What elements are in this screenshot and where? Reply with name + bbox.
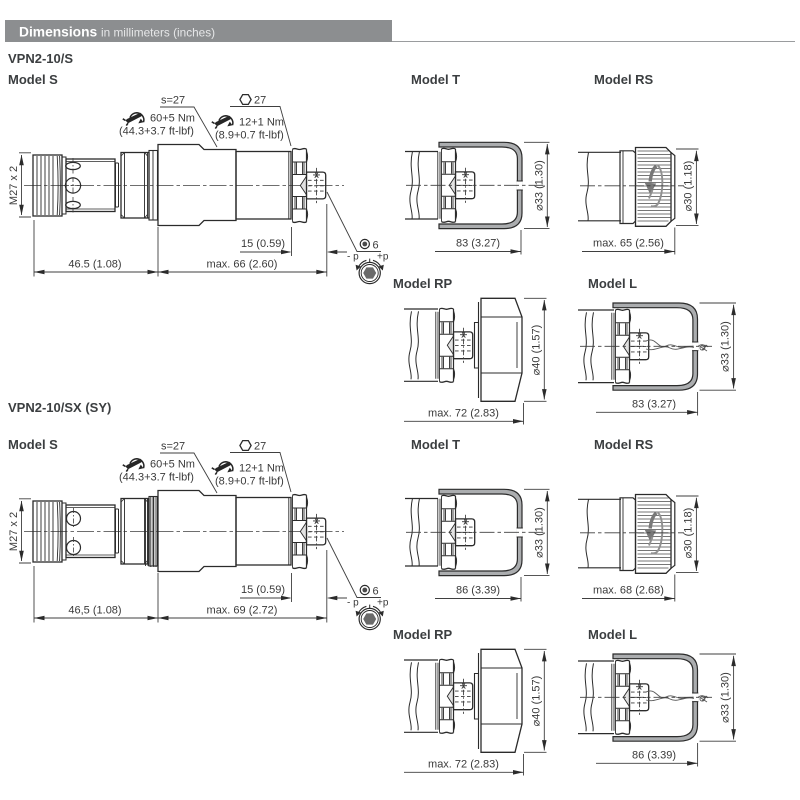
svg-text:86 (3.39): 86 (3.39) [456, 585, 500, 597]
svg-text:86 (3.39): 86 (3.39) [632, 750, 676, 762]
svg-text:15 (0.59): 15 (0.59) [241, 238, 285, 250]
svg-text:83 (3.27): 83 (3.27) [632, 399, 676, 411]
svg-text:max. 65 (2.56): max. 65 (2.56) [593, 238, 664, 250]
svg-text:Model RS: Model RS [594, 72, 654, 87]
svg-text:Model T: Model T [411, 437, 460, 452]
svg-text:46.5 (1.08): 46.5 (1.08) [68, 259, 121, 271]
svg-text:46,5 (1.08): 46,5 (1.08) [68, 605, 121, 617]
svg-text:Model RS: Model RS [594, 437, 654, 452]
svg-text:Model T: Model T [411, 72, 460, 87]
svg-text:VPN2-10/S: VPN2-10/S [8, 51, 73, 66]
svg-text:Model S: Model S [8, 72, 58, 87]
svg-text:VPN2-10/SX (SY): VPN2-10/SX (SY) [8, 400, 111, 415]
svg-text:15 (0.59): 15 (0.59) [241, 584, 285, 596]
svg-text:Dimensions: Dimensions [19, 25, 98, 40]
svg-text:Model L: Model L [588, 276, 637, 291]
svg-text:max. 66 (2.60): max. 66 (2.60) [207, 259, 278, 271]
svg-text:in millimeters (inches): in millimeters (inches) [101, 26, 215, 40]
svg-text:max. 69 (2.72): max. 69 (2.72) [207, 605, 278, 617]
svg-text:Model L: Model L [588, 627, 637, 642]
svg-text:Model S: Model S [8, 437, 58, 452]
svg-text:83 (3.27): 83 (3.27) [456, 238, 500, 250]
svg-text:Model RP: Model RP [393, 276, 453, 291]
svg-text:max. 68 (2.68): max. 68 (2.68) [593, 585, 664, 597]
svg-text:Model RP: Model RP [393, 627, 453, 642]
